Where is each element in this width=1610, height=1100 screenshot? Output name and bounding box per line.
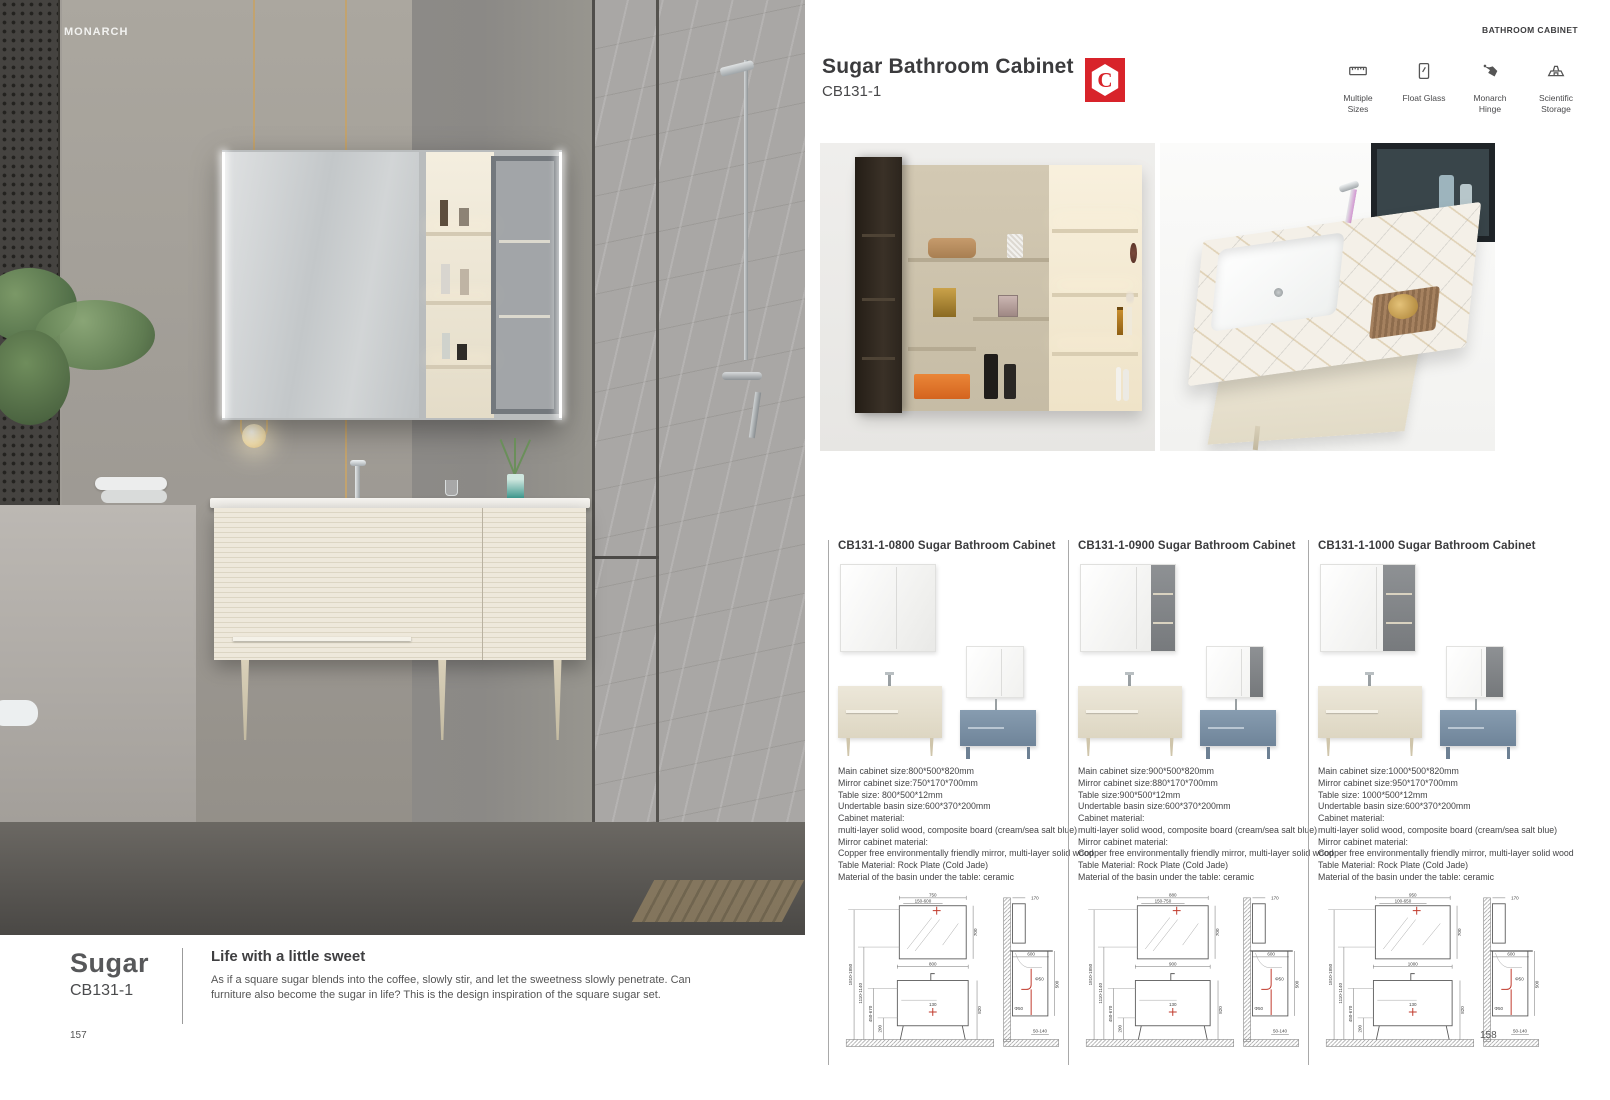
spec-line: Copper free environmentally friendly mir…: [1318, 848, 1543, 860]
feature-scientific-storage: Scientific Storage: [1530, 60, 1582, 114]
variant-title: CB131-1-0800 Sugar Bathroom Cabinet: [838, 540, 1056, 552]
variant-column-1000: CB131-1-1000 Sugar Bathroom Cabinet Main…: [1308, 540, 1536, 1065]
black-bottle: [1004, 364, 1017, 398]
spec-line: Table size: 1000*500*12mm: [1318, 790, 1543, 802]
gold-bottle: [933, 288, 956, 318]
product-title: Sugar Bathroom Cabinet: [822, 55, 1074, 79]
spec-line: Undertable basin size:600*370*200mm: [838, 801, 1063, 813]
hand-shower: [749, 392, 761, 438]
wood-mat: [632, 880, 804, 922]
feature-monarch-hinge: Monarch Hinge: [1464, 60, 1516, 114]
spec-line: Mirror cabinet material:: [1318, 837, 1543, 849]
drawer-handle: [233, 637, 412, 641]
variant-thumbnails: [1078, 560, 1296, 760]
svg-text:1000: 1000: [1408, 961, 1419, 966]
spec-line: Table size: 800*500*12mm: [838, 790, 1063, 802]
shower-enclosure: [592, 0, 805, 935]
page-header-label: BATHROOM CABINET: [1482, 25, 1578, 35]
svg-text:170: 170: [1271, 895, 1279, 900]
mirror-door: [225, 152, 419, 418]
mirror-cabinet-thumb: [840, 564, 936, 652]
svg-text:700: 700: [1215, 928, 1220, 936]
svg-text:130: 130: [1169, 1002, 1177, 1007]
page-number-right: 158: [1480, 1030, 1497, 1041]
cream-vanity-thumb: [1318, 684, 1422, 760]
svg-text:50-140: 50-140: [1513, 1028, 1528, 1033]
svg-text:1810-1850: 1810-1850: [1328, 963, 1333, 985]
svg-text:130: 130: [1409, 1002, 1417, 1007]
spec-line: Undertable basin size:600*370*200mm: [1078, 801, 1303, 813]
open-shelf-column: [426, 152, 494, 418]
blue-vanity-thumb: [960, 710, 1036, 760]
led-strip: [222, 152, 225, 418]
shower-valve: [722, 372, 762, 380]
toilet-glimpse: [0, 700, 38, 726]
spec-line: Material of the basin under the table: c…: [1318, 872, 1543, 884]
faucet: [348, 458, 368, 498]
spec-line: Mirror cabinet size:950*170*700mm: [1318, 778, 1543, 790]
spec-line: Table Material: Rock Plate (Cold Jade): [1318, 860, 1543, 872]
small-mirror-thumb: [1446, 646, 1504, 698]
spec-list: Main cabinet size:1000*500*820mm Mirror …: [1318, 766, 1543, 884]
cream-vanity-thumb: [1078, 684, 1182, 760]
svg-text:170: 170: [1511, 895, 1519, 900]
small-mirror-thumb: [966, 646, 1024, 698]
right-page: BATHROOM CABINET Sugar Bathroom Cabinet …: [805, 0, 1610, 1100]
spec-line: Material of the basin under the table: c…: [1078, 872, 1303, 884]
plant-in-vase: [497, 436, 537, 500]
towel-roll: [928, 238, 976, 258]
flowers: [1126, 288, 1134, 308]
spec-line: Main cabinet size:800*500*820mm: [838, 766, 1063, 778]
svg-text:800: 800: [929, 961, 937, 966]
faucet: [1345, 189, 1357, 224]
svg-text:100-650: 100-650: [1395, 898, 1412, 903]
svg-text:Φ50: Φ50: [1494, 1006, 1503, 1011]
cream-vanity-thumb: [838, 684, 942, 760]
spec-line: Mirror cabinet material:: [1078, 837, 1303, 849]
svg-text:600: 600: [1507, 951, 1515, 956]
feature-label: Scientific Storage: [1530, 93, 1582, 114]
open-dark-door: [855, 157, 903, 413]
svg-text:820: 820: [1460, 1006, 1465, 1014]
technical-drawing: 750 150-600 700 800 820 130: [838, 890, 1056, 1077]
slogan-body: As if a square sugar blends into the cof…: [211, 973, 723, 1004]
svg-text:450-670: 450-670: [1348, 1005, 1353, 1022]
cabinet-leg: [553, 660, 563, 740]
glass-door: [491, 156, 559, 414]
svg-text:750: 750: [929, 892, 937, 897]
towels: [95, 477, 175, 507]
spec-list: Main cabinet size:800*500*820mm Mirror c…: [838, 766, 1063, 884]
svg-text:880: 880: [1169, 892, 1177, 897]
cabinet-leg: [437, 660, 447, 740]
svg-text:50-140: 50-140: [1273, 1028, 1288, 1033]
svg-text:130: 130: [929, 1002, 937, 1007]
svg-text:500: 500: [1295, 980, 1300, 988]
countertop-basin-photo: [1160, 143, 1495, 451]
feature-label: Monarch Hinge: [1464, 93, 1516, 114]
slogan-title: Life with a little sweet: [211, 948, 723, 965]
led-mirror-cabinet: [222, 150, 562, 420]
svg-text:700: 700: [1457, 928, 1462, 936]
vanity-cabinet: [214, 498, 586, 738]
series-code: CB131-1: [70, 982, 182, 1000]
open-mirror-cabinet: [860, 165, 1141, 411]
variant-title: CB131-1-1000 Sugar Bathroom Cabinet: [1318, 540, 1536, 552]
svg-text:600: 600: [1027, 951, 1035, 956]
svg-text:1810-1850: 1810-1850: [848, 963, 853, 985]
white-bottle: [1123, 369, 1129, 401]
svg-text:500: 500: [1535, 980, 1540, 988]
variant-columns: CB131-1-0800 Sugar Bathroom Cabinet Main…: [805, 540, 1610, 1070]
spec-line: Main cabinet size:900*500*820mm: [1078, 766, 1303, 778]
feature-label: Multiple Sizes: [1332, 93, 1384, 114]
small-vase: [1127, 307, 1133, 334]
spec-line: Main cabinet size:1000*500*820mm: [1318, 766, 1543, 778]
technical-drawing: 880 150-750 700 900 820 130: [1078, 890, 1296, 1077]
technical-drawing: 950 100-650 700 1000 820 130: [1318, 890, 1536, 1077]
spec-line: multi-layer solid wood, composite board …: [1078, 825, 1303, 837]
spec-line: multi-layer solid wood, composite board …: [1318, 825, 1543, 837]
spec-line: Mirror cabinet material:: [838, 837, 1063, 849]
bathroom-scene-photo: MONARCH: [0, 0, 805, 935]
svg-text:Φ50: Φ50: [1035, 976, 1044, 981]
svg-text:900: 900: [1169, 961, 1177, 966]
basin-drain: [1274, 288, 1283, 297]
white-bottle: [1116, 367, 1122, 401]
svg-text:500: 500: [1055, 980, 1060, 988]
spec-line: Table size:900*500*12mm: [1078, 790, 1303, 802]
blue-vanity-thumb: [1440, 710, 1516, 760]
float-glass-icon: [1413, 69, 1435, 86]
svg-text:200: 200: [878, 1024, 883, 1032]
monarch-hinge-icon: [1479, 69, 1501, 86]
product-code: CB131-1: [822, 83, 1074, 100]
svg-text:1110-1140: 1110-1140: [858, 982, 863, 1003]
svg-text:1110-1140: 1110-1140: [1098, 982, 1103, 1003]
svg-text:150-600: 150-600: [915, 898, 932, 903]
orange-box: [914, 374, 970, 399]
svg-text:50-140: 50-140: [1033, 1028, 1048, 1033]
perfume-bottle: [998, 295, 1018, 317]
svg-text:200: 200: [1358, 1024, 1363, 1032]
feature-label: Float Glass: [1398, 93, 1450, 104]
led-strip: [559, 152, 562, 418]
spec-line: Copper free environmentally friendly mir…: [838, 848, 1063, 860]
svg-text:Φ50: Φ50: [1515, 976, 1524, 981]
left-page: MONARCH Sugar CB131-1 Life with a little…: [0, 0, 805, 1100]
variant-title: CB131-1-0900 Sugar Bathroom Cabinet: [1078, 540, 1296, 552]
shower-pipe: [744, 60, 748, 360]
svg-text:150-750: 150-750: [1155, 898, 1172, 903]
spec-line: multi-layer solid wood, composite board …: [838, 825, 1063, 837]
svg-text:Φ50: Φ50: [1014, 1006, 1023, 1011]
mirror-cabinet-thumb: [1080, 564, 1176, 652]
scientific-storage-icon: [1545, 69, 1567, 86]
variant-thumbnails: [838, 560, 1056, 760]
lit-shelf-column: [1049, 165, 1142, 411]
feature-icons-row: Multiple Sizes Float Glass Monarch Hinge…: [1332, 60, 1582, 114]
series-intro: Sugar CB131-1 Life with a little sweet A…: [70, 948, 750, 1024]
svg-text:Φ50: Φ50: [1254, 1006, 1263, 1011]
svg-text:Φ50: Φ50: [1275, 976, 1284, 981]
feature-multiple-sizes: Multiple Sizes: [1332, 60, 1384, 114]
mirror-cabinet-thumb: [1320, 564, 1416, 652]
mirror-cabinet-interior-photo: [820, 143, 1155, 451]
variant-column-0800: CB131-1-0800 Sugar Bathroom Cabinet Main…: [828, 540, 1056, 1065]
catalog-spread: MONARCH Sugar CB131-1 Life with a little…: [0, 0, 1610, 1100]
series-name: Sugar: [70, 948, 182, 979]
brand-logo-text: MONARCH: [64, 26, 128, 38]
svg-text:700: 700: [973, 928, 978, 936]
spec-line: Table Material: Rock Plate (Cold Jade): [838, 860, 1063, 872]
svg-text:1110-1140: 1110-1140: [1338, 982, 1343, 1003]
countertop: [210, 498, 590, 508]
spec-line: Mirror cabinet size:750*170*700mm: [838, 778, 1063, 790]
svg-text:950: 950: [1409, 892, 1417, 897]
svg-text:1810-1850: 1810-1850: [1088, 963, 1093, 985]
spec-line: Cabinet material:: [1078, 813, 1303, 825]
spec-line: Table Material: Rock Plate (Cold Jade): [1078, 860, 1303, 872]
spec-line: Copper free environmentally friendly mir…: [1078, 848, 1303, 860]
svg-text:600: 600: [1267, 951, 1275, 956]
variant-column-0900: CB131-1-0900 Sugar Bathroom Cabinet Main…: [1068, 540, 1296, 1065]
feature-float-glass: Float Glass: [1398, 60, 1450, 114]
spec-line: Undertable basin size:600*370*200mm: [1318, 801, 1543, 813]
white-cup: [1007, 234, 1024, 259]
blue-vanity-thumb: [1200, 710, 1276, 760]
shower-head: [719, 60, 754, 77]
spec-line: Mirror cabinet size:880*170*700mm: [1078, 778, 1303, 790]
cabinet-leg: [240, 660, 250, 740]
svg-text:820: 820: [977, 1006, 982, 1014]
product-photos: [820, 143, 1495, 451]
variant-thumbnails: [1318, 560, 1536, 760]
amber-perfume: [1117, 307, 1123, 334]
spec-list: Main cabinet size:900*500*820mm Mirror c…: [1078, 766, 1303, 884]
dried-plant: [1130, 243, 1136, 263]
logo-letter: C: [1097, 70, 1112, 91]
svg-text:200: 200: [1118, 1024, 1123, 1032]
spec-line: Material of the basin under the table: c…: [838, 872, 1063, 884]
brand-logo-mark: C: [1085, 58, 1125, 102]
spec-line: Cabinet material:: [1318, 813, 1543, 825]
black-bottle: [984, 354, 998, 398]
small-mirror-thumb: [1206, 646, 1264, 698]
svg-text:170: 170: [1031, 895, 1039, 900]
spec-line: Cabinet material:: [838, 813, 1063, 825]
multiple-sizes-icon: [1347, 69, 1369, 86]
page-number-left: 157: [70, 1030, 87, 1041]
svg-text:450-670: 450-670: [868, 1005, 873, 1022]
svg-text:450-670: 450-670: [1108, 1005, 1113, 1022]
hexagon-shape: C: [1090, 63, 1120, 97]
svg-text:820: 820: [1218, 1006, 1223, 1014]
glass-cup: [445, 480, 458, 496]
